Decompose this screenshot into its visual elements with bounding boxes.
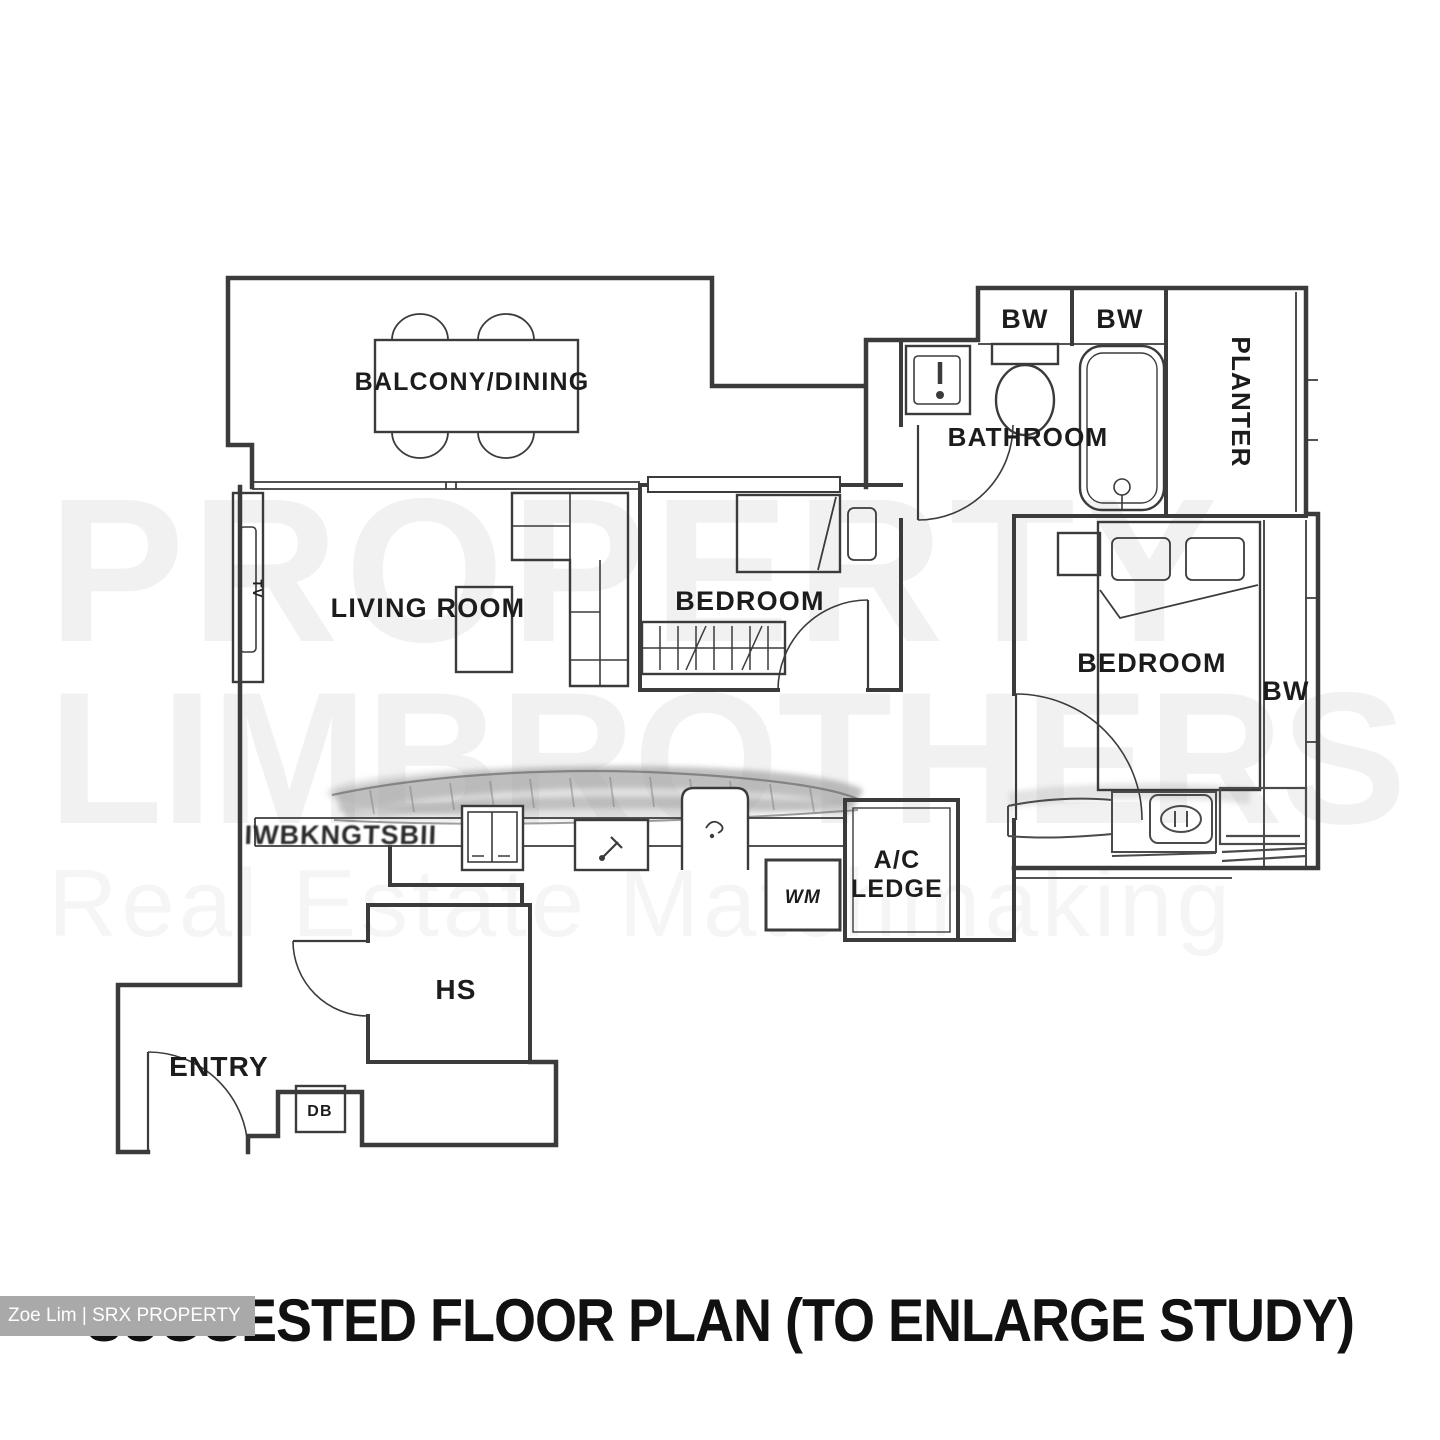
bedside-table xyxy=(1058,533,1100,575)
sofa xyxy=(512,493,628,686)
label-tv: TV xyxy=(250,579,265,598)
window-bedroom-middle xyxy=(648,477,840,492)
prep-counter xyxy=(575,820,648,870)
furniture xyxy=(233,314,1306,1132)
label-bedroom-right: BEDROOM xyxy=(1077,648,1226,678)
label-ledge: LEDGE xyxy=(851,875,943,903)
outer-walls xyxy=(118,278,1318,1152)
floor-plan-drawing: BALCONY/DINING LIVING ROOM BEDROOM BATHR… xyxy=(0,0,1440,1440)
label-bw-bedroom: BW xyxy=(1262,676,1309,706)
label-smudged: IWBKNGTSBII xyxy=(244,820,437,850)
wardrobe xyxy=(642,622,785,674)
bathroom-sink xyxy=(906,346,970,414)
label-bw-bathroom-2: BW xyxy=(1096,304,1143,334)
kitchen-sink xyxy=(462,806,523,870)
label-db: DB xyxy=(307,1103,333,1120)
agent-watermark-badge: Zoe Lim | SRX PROPERTY xyxy=(0,1296,255,1336)
label-balcony-dining: BALCONY/DINING xyxy=(355,368,590,396)
label-planter: PLANTER xyxy=(1226,336,1256,467)
label-living-room: LIVING ROOM xyxy=(331,593,526,623)
label-bedroom-middle: BEDROOM xyxy=(675,586,824,616)
stove xyxy=(682,788,748,870)
label-wm: WM xyxy=(785,887,821,908)
study-desk-sketch xyxy=(1008,792,1216,856)
label-ac: A/C xyxy=(874,846,921,874)
label-entry: ENTRY xyxy=(169,1051,269,1082)
label-hs: HS xyxy=(435,974,476,1005)
label-bathroom: BATHROOM xyxy=(948,422,1109,452)
hs-door xyxy=(293,941,368,1016)
floor-plan-page: PROPERTY LIMBROTHERS Real Estate Matchma… xyxy=(0,0,1440,1440)
label-bw-bathroom-1: BW xyxy=(1001,304,1048,334)
bed-middle xyxy=(737,495,876,572)
